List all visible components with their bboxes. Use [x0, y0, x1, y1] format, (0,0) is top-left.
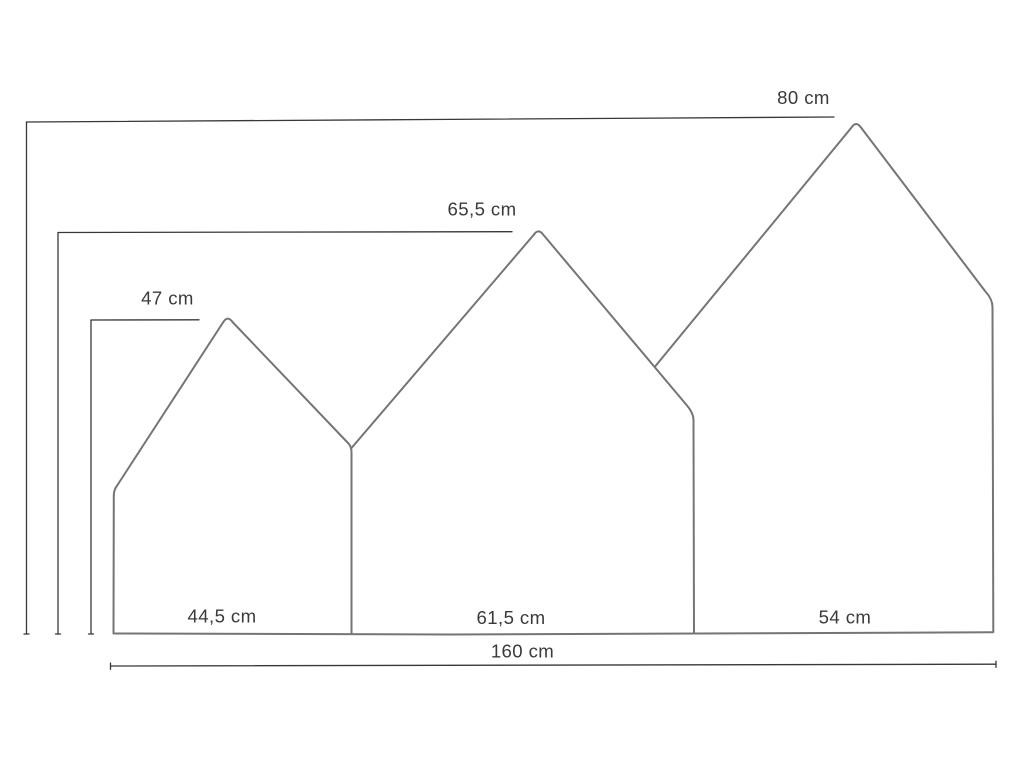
svg-text:61,5 cm: 61,5 cm	[477, 607, 546, 628]
svg-text:65,5 cm: 65,5 cm	[448, 199, 517, 220]
svg-text:54 cm: 54 cm	[819, 607, 872, 628]
svg-text:47 cm: 47 cm	[141, 288, 194, 309]
svg-text:80 cm: 80 cm	[777, 87, 830, 108]
svg-text:160 cm: 160 cm	[491, 641, 554, 662]
svg-text:44,5 cm: 44,5 cm	[188, 606, 257, 627]
